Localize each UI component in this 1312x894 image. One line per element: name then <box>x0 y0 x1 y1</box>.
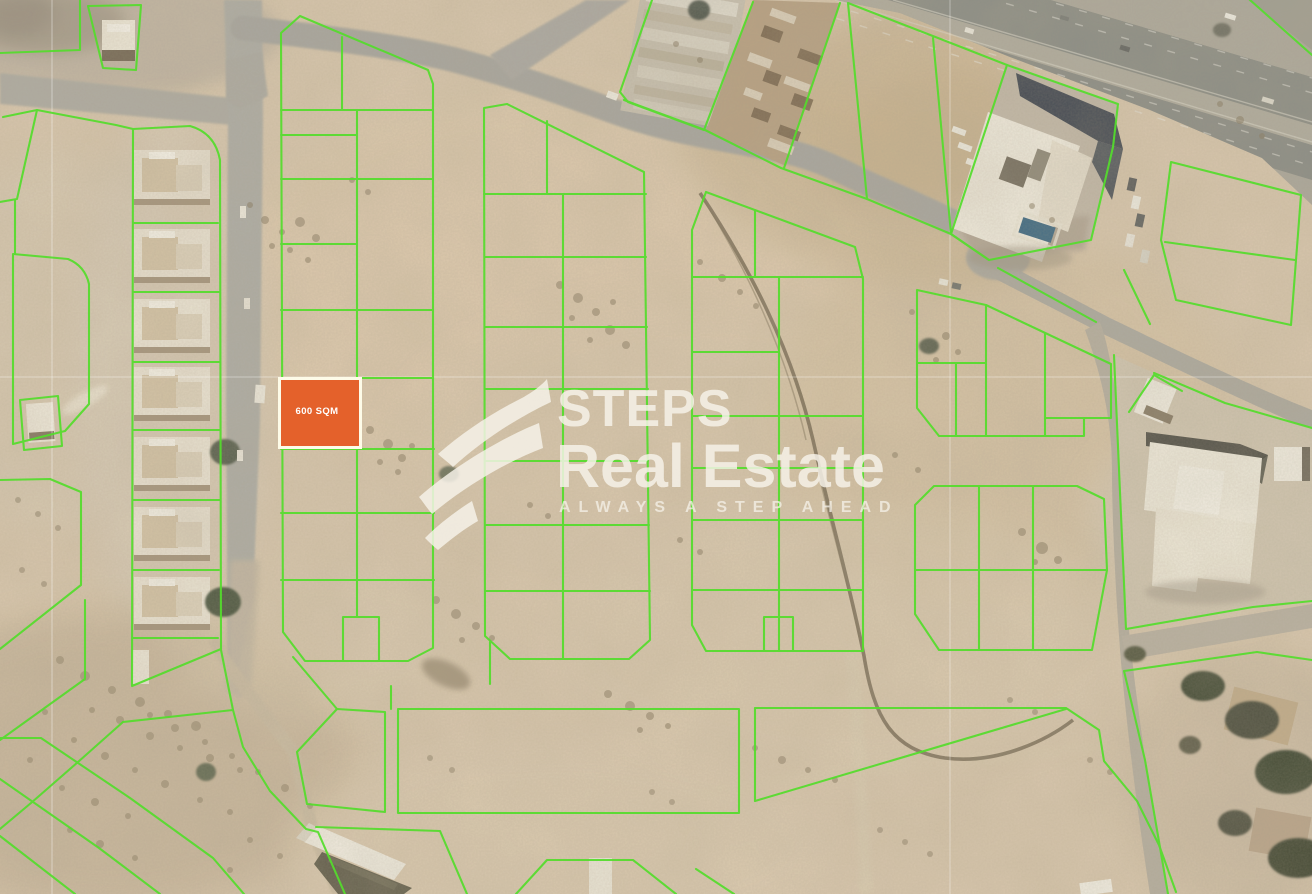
svg-text:Real Estate: Real Estate <box>556 432 885 500</box>
svg-text:ALWAYS A STEP AHEAD: ALWAYS A STEP AHEAD <box>559 499 899 516</box>
svg-text:600 SQM: 600 SQM <box>296 406 339 417</box>
svg-text:STEPS: STEPS <box>557 380 733 438</box>
